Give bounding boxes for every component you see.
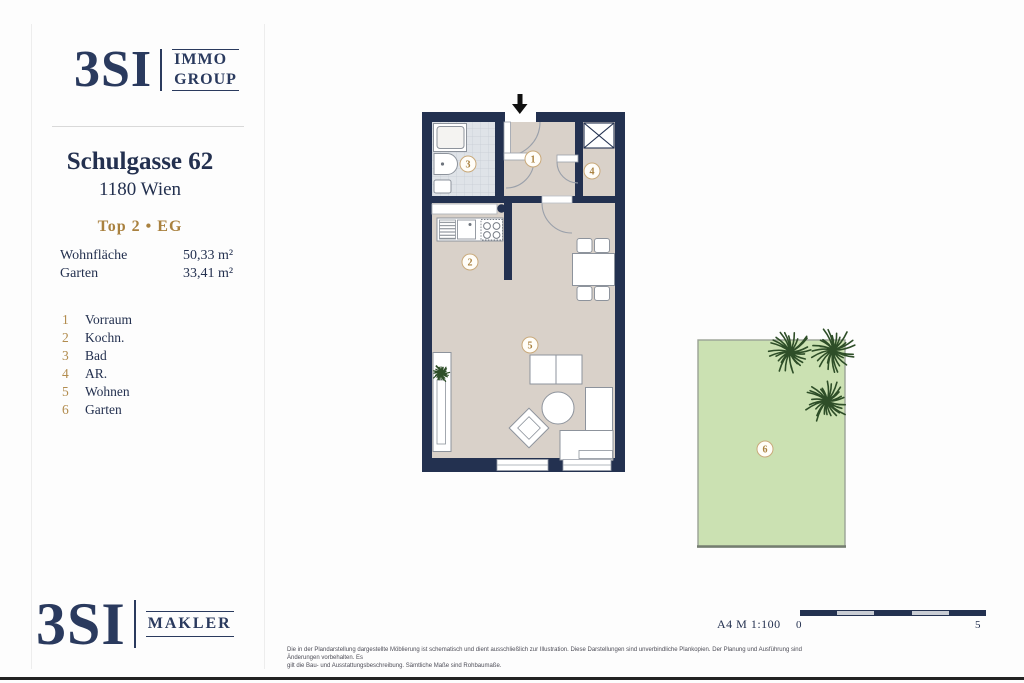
room-badge-1: 1 xyxy=(525,151,541,167)
disclaimer-line-2: gilt die Bau- und Ausstattungsbeschreibu… xyxy=(287,662,807,670)
dishwasher-icon xyxy=(440,220,456,239)
kitchen-fixtures xyxy=(432,204,506,241)
toilet-icon xyxy=(434,180,451,193)
svg-text:3: 3 xyxy=(466,160,471,171)
svg-text:2: 2 xyxy=(468,258,473,269)
floor-plan-drawing: 1 2 3 4 5 6 xyxy=(0,0,1024,683)
svg-text:5: 5 xyxy=(528,341,533,352)
sink-icon xyxy=(434,154,457,175)
scale-segment xyxy=(837,610,874,616)
entrance-arrow-icon xyxy=(512,94,528,114)
page-bottom-edge xyxy=(0,677,1024,680)
scale-segment xyxy=(912,610,949,616)
scale-segment xyxy=(874,610,911,616)
storage-door-leaf xyxy=(557,155,578,162)
room-badge-2: 2 xyxy=(462,254,478,270)
scale-segment xyxy=(949,610,986,616)
scale-segment xyxy=(800,610,837,616)
round-table-icon xyxy=(542,392,574,424)
room-badge-5: 5 xyxy=(522,337,538,353)
garden-area xyxy=(697,329,855,547)
disclaimer-line-1: Die in der Plandarstellung dargestellte … xyxy=(287,646,807,662)
scale-min-label: 0 xyxy=(796,619,802,631)
disclaimer-text: Die in der Plandarstellung dargestellte … xyxy=(287,646,807,670)
svg-text:1: 1 xyxy=(531,155,536,166)
kitchen-sink-icon xyxy=(458,220,476,239)
scale-bar xyxy=(800,610,986,616)
entrance-opening xyxy=(505,112,536,122)
storage-shelf-icon xyxy=(584,123,614,148)
room-badge-4: 4 xyxy=(584,163,600,179)
svg-text:4: 4 xyxy=(590,167,595,178)
entrance-door-leaf xyxy=(504,122,511,156)
scale-max-label: 5 xyxy=(975,619,981,631)
sheet-format-scale: A4 M 1:100 xyxy=(717,617,781,632)
stove-icon xyxy=(481,220,503,241)
apartment-plan xyxy=(422,94,625,472)
living-door-opening xyxy=(542,196,572,203)
room-badge-3: 3 xyxy=(460,156,476,172)
sideboard-icon xyxy=(433,353,451,452)
room-badge-6: 6 xyxy=(757,441,773,457)
svg-text:6: 6 xyxy=(763,445,768,456)
